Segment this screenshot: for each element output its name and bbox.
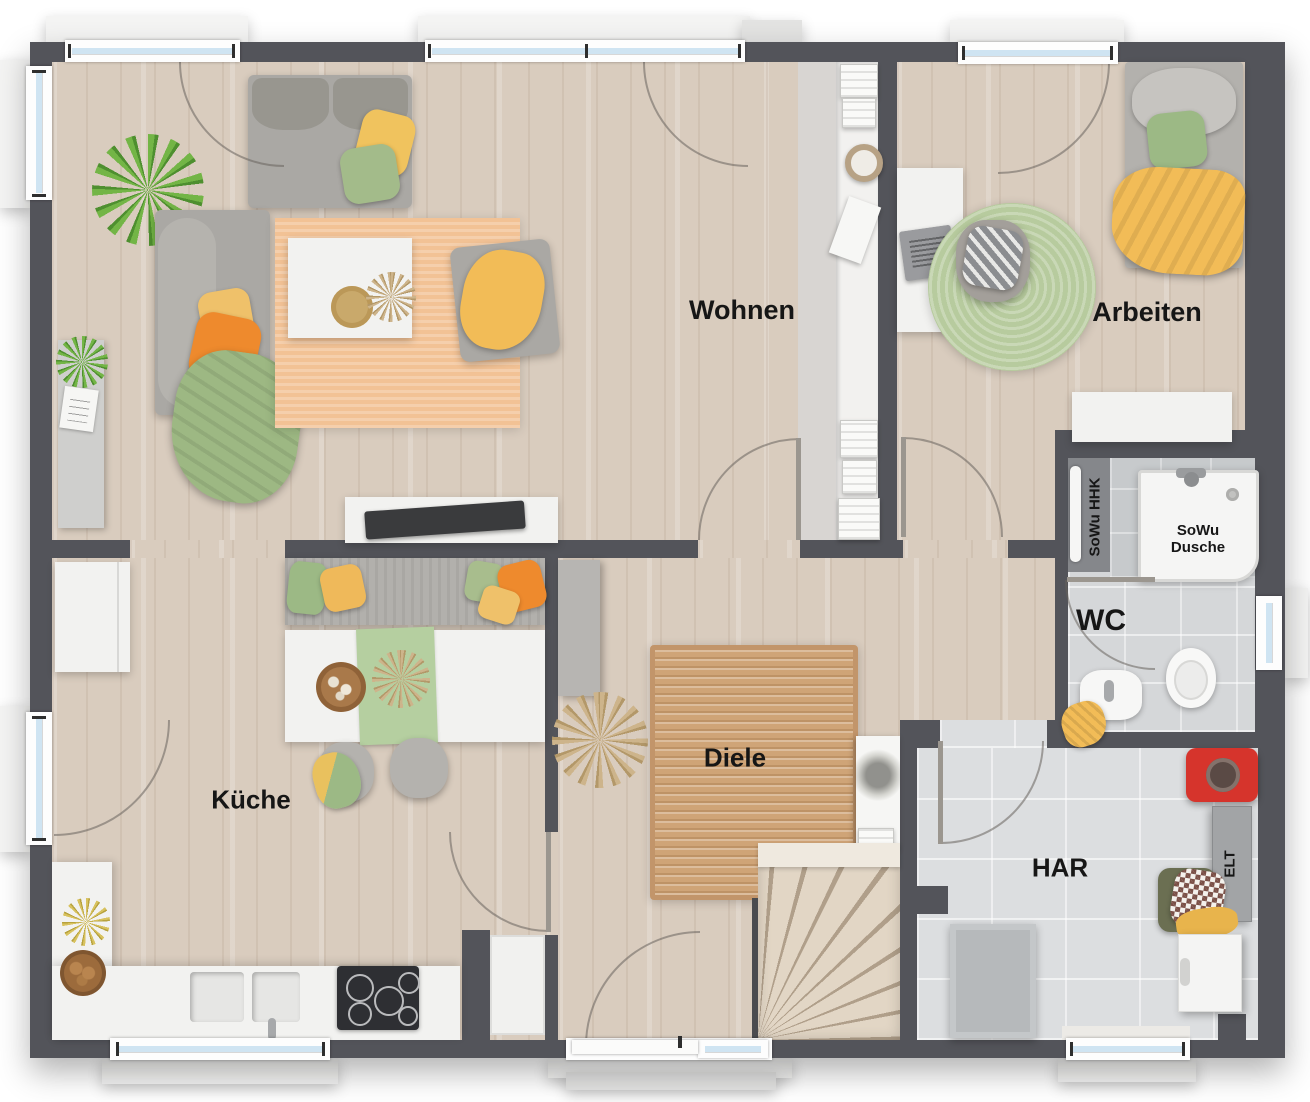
window-tick <box>32 70 46 73</box>
window-top-wohnen-left <box>65 40 240 62</box>
wall-kueche-diele-lower <box>462 930 490 1040</box>
window-tick <box>428 44 431 58</box>
door-leaf-wc <box>1067 577 1155 582</box>
door-arc-terrace-arbeiten <box>998 62 1110 174</box>
wall-har-niche <box>1218 1014 1246 1040</box>
fixture-label-towel-radiator: SoWu HHK <box>1088 478 1105 557</box>
window-tick <box>116 1042 119 1056</box>
window-glass <box>1073 1046 1183 1052</box>
door-leaf-wohnen <box>796 438 801 540</box>
hall-cabinet <box>558 560 600 696</box>
pillow-striped-chair <box>960 224 1026 293</box>
door-arc-terrace-wohnen-left <box>179 62 284 167</box>
vase-plant <box>366 272 416 322</box>
freezer-cube <box>950 924 1036 1038</box>
window-tick <box>738 44 741 58</box>
passage-wohnen-kueche <box>130 540 285 558</box>
window-top-arbeiten <box>958 42 1118 64</box>
window-tick <box>1110 46 1113 60</box>
burner <box>398 972 420 994</box>
window-tick <box>962 46 965 60</box>
door-leaf-kueche-diele <box>546 832 551 932</box>
towel-radiator <box>1070 466 1081 562</box>
window-tick <box>32 716 46 719</box>
door-leaf-har <box>938 741 943 844</box>
door-leaf-arbeiten <box>901 437 906 537</box>
window-left-kueche <box>26 712 52 845</box>
entry-step-lower <box>566 1072 776 1090</box>
shelf-card <box>59 386 99 432</box>
doorway-arbeiten <box>903 540 1008 558</box>
stair-void-floor <box>798 62 836 540</box>
window-tick <box>585 44 588 58</box>
fixture-label-shower: SoWu Dusche <box>1171 523 1225 557</box>
sink-right <box>252 972 300 1022</box>
toilet-seat <box>1174 660 1208 700</box>
book-stack <box>842 98 876 128</box>
sideboard-arbeiten <box>1072 392 1232 442</box>
shower-drain <box>1226 488 1239 501</box>
stair-railing <box>752 898 758 1040</box>
window-glass <box>36 73 42 193</box>
wall-bump-top <box>742 20 802 44</box>
sill-right <box>1283 588 1308 678</box>
wall-niche-shelf <box>917 886 948 914</box>
washing-machine-door <box>1180 958 1190 986</box>
entry-door-glass <box>698 1040 768 1058</box>
white-niche-cabinet <box>490 935 545 1035</box>
window-glass <box>72 48 233 54</box>
door-arc-har <box>941 741 1044 844</box>
burner <box>346 974 374 1002</box>
staircase <box>758 843 900 1040</box>
tall-cabinet-kueche <box>55 562 130 672</box>
window-tick <box>68 44 71 58</box>
sill-bottom-left <box>102 1056 338 1084</box>
door-arc-arbeiten <box>903 437 1003 537</box>
pillow-green-bed <box>1145 109 1209 171</box>
window-right-wc <box>1256 596 1282 670</box>
entry-door-handle <box>678 1036 682 1048</box>
book-stack <box>842 460 877 494</box>
counter-flowers <box>62 898 110 946</box>
room-label-kueche: Küche <box>211 785 290 814</box>
floor-plan: Wohnen Arbeiten Küche Diele HAR WC SoWu … <box>0 0 1310 1102</box>
fruit-bowl <box>316 662 366 712</box>
window-tick <box>1070 1042 1073 1056</box>
book-stack <box>840 64 878 98</box>
window-glass <box>117 1046 323 1052</box>
door-arc-entry <box>585 931 700 1046</box>
window-bottom-har <box>1066 1038 1190 1060</box>
window-glass <box>965 50 1111 56</box>
room-label-wc: WC <box>1076 604 1126 638</box>
door-arc-kueche-diele <box>449 832 549 932</box>
window-tick <box>32 194 46 197</box>
sink-left <box>190 972 244 1022</box>
walnut-bowl <box>60 950 106 996</box>
window-tick <box>1182 1042 1185 1056</box>
decor-ring <box>845 144 883 182</box>
shower-head <box>1184 472 1199 487</box>
stair-landing <box>758 843 900 867</box>
window-bottom-kueche <box>110 1038 330 1060</box>
room-label-wohnen: Wohnen <box>689 295 795 325</box>
door-arc-terrace-wohnen-right <box>643 62 748 167</box>
window-glass <box>705 1046 761 1052</box>
burner <box>348 1002 372 1026</box>
burner <box>398 1006 418 1026</box>
pillow-yellow-bench <box>318 562 368 614</box>
chair-right <box>390 738 448 798</box>
window-glass <box>1266 603 1272 663</box>
basin-faucet <box>1104 680 1114 702</box>
room-label-diele: Diele <box>704 743 766 772</box>
pillow-green-sofa-top <box>338 142 402 206</box>
doorway-wohnen <box>698 540 800 558</box>
book-stack <box>838 498 880 540</box>
window-tick <box>232 44 235 58</box>
door-arc-kueche-terrace <box>54 720 170 836</box>
window-left-wohnen <box>26 66 52 200</box>
room-label-har: HAR <box>1032 853 1088 882</box>
room-label-arbeiten: Arbeiten <box>1092 297 1202 327</box>
door-arc-wohnen <box>698 438 800 540</box>
red-unit-center <box>1206 758 1240 792</box>
window-glass <box>36 719 42 838</box>
fixture-label-elt: ELT <box>1223 850 1240 877</box>
sink-faucet <box>268 1018 276 1040</box>
window-tick <box>32 838 46 841</box>
shelf-plant <box>56 336 108 388</box>
window-tick <box>322 1042 325 1056</box>
pampas-plant <box>552 692 648 788</box>
book-stack <box>840 420 878 458</box>
table-flowers <box>372 650 430 708</box>
